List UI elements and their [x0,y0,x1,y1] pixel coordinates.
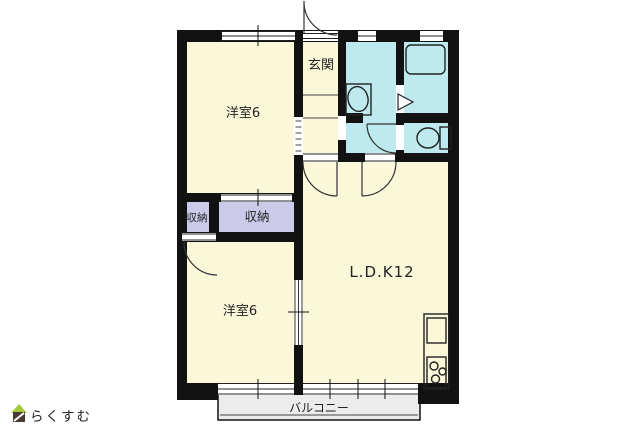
label-ldk: L.D.K12 [349,263,414,281]
wall-ldk-top-a [338,153,365,162]
label-entrance: 玄関 [308,58,334,73]
logo-text: らくすむ [30,409,92,425]
label-closet-right: 収納 [244,209,269,224]
wall-bath-bottom [404,113,448,123]
door-top-bedroom [294,117,303,155]
label-balcony: バルコニー [289,401,349,415]
opening-hall-ldk [303,153,338,162]
window-washroom [358,31,376,41]
wall-ldk-top-b [395,153,448,162]
wet-area-floor [338,42,450,155]
opening-washroom-ldk [365,153,395,162]
entrance-opening [303,31,338,41]
wall-bottom-left [177,383,218,400]
label-closet-left: 収納 [187,211,208,224]
wall-left [177,30,187,400]
floorplan-page: 洋室6 玄関 収納 収納 洋室6 L.D.K12 バルコニー らくすむ [0,0,640,425]
opening-hall-washroom [338,116,346,140]
label-bedroom-top: 洋室6 [226,105,260,121]
label-bedroom-bottom: 洋室6 [223,303,257,319]
wall-entrance-right [338,42,346,162]
window-bathroom [420,31,443,41]
opening-toilet-door [396,125,404,150]
floorplan-drawing: 洋室6 玄関 収納 収納 洋室6 L.D.K12 バルコニー らくすむ [0,0,640,425]
door-closet-left [182,233,216,241]
